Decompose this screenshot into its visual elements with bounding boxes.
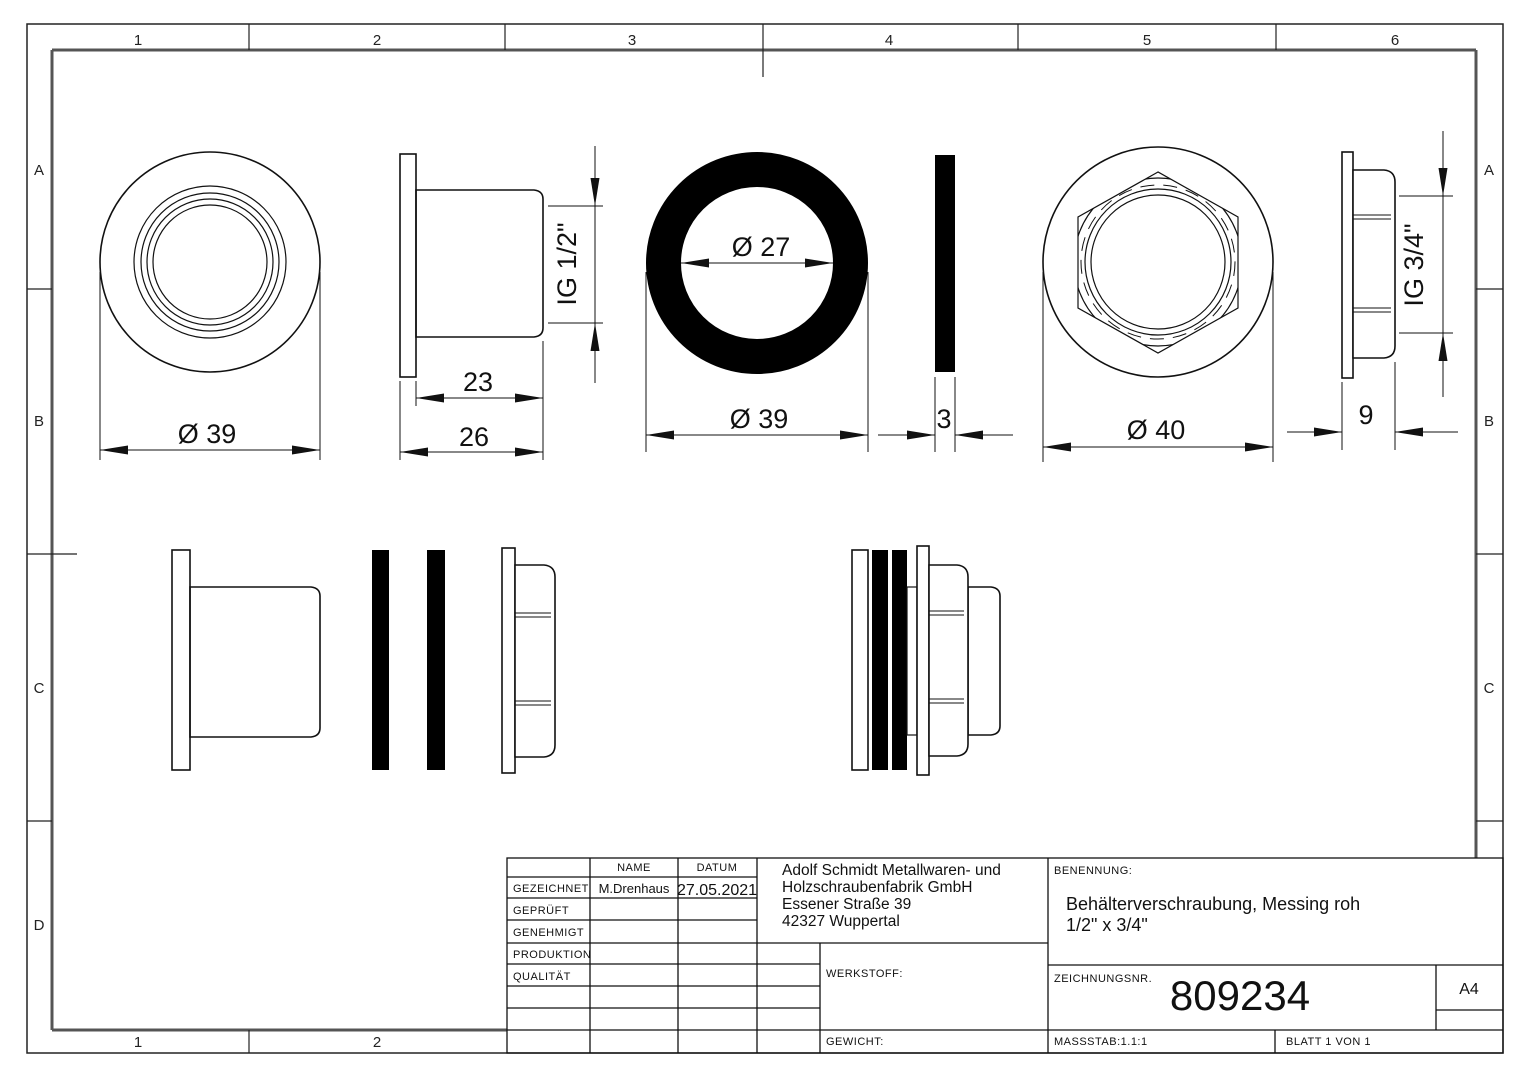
zone-top-1: 1 — [134, 32, 142, 49]
drawn-by-name: M.Drenhaus — [599, 881, 670, 896]
massstab-label: MASSSTAB:1.1:1 — [1054, 1036, 1148, 1048]
dim-label-nut-outer-diameter: Ø 40 — [1127, 415, 1186, 445]
drawing-canvas: 1 2 3 4 5 6 1 2 A B C D A B C Ø 39 — [0, 0, 1528, 1080]
zone-left-d: D — [34, 917, 45, 934]
assembly-thread-protrusion — [968, 587, 1000, 735]
dim-bushing-front-diameter: Ø 39 — [100, 272, 320, 460]
dim-nut-thread: IG 3/4" — [1399, 131, 1453, 397]
name-header: NAME — [617, 862, 651, 874]
zeichnungsnr-label: ZEICHNUNGSNR. — [1054, 973, 1152, 985]
dim-label-gasket-thickness: 3 — [936, 404, 951, 434]
view-bushing-side: 23 26 IG 1/2" — [400, 146, 603, 460]
dim-label-bushing-thread: IG 1/2" — [552, 222, 582, 305]
assembly-gasket-1 — [872, 550, 888, 770]
view-gasket-side: 3 — [878, 155, 1013, 452]
row-label-genehmigt: GENEHMIGT — [513, 927, 584, 939]
zone-bottom-2: 2 — [373, 1034, 381, 1051]
company-line-4: 42327 Wuppertal — [782, 913, 900, 930]
zone-right-c: C — [1484, 680, 1495, 697]
title-block: NAME DATUM GEZEICHNET M.Drenhaus 27.05.2… — [507, 858, 1503, 1053]
dim-label-gasket-inner-diameter: Ø 27 — [732, 232, 791, 262]
dim-label-nut-width: 9 — [1358, 400, 1373, 430]
view-assembly — [852, 546, 1000, 775]
gewicht-label: GEWICHT: — [826, 1036, 884, 1048]
company-line-2: Holzschraubenfabrik GmbH — [782, 879, 972, 896]
zone-left-a: A — [34, 162, 44, 179]
sheet-format: A4 — [1459, 981, 1479, 998]
row-label-produktion: PRODUKTION — [513, 949, 591, 961]
zone-top-3: 3 — [628, 32, 636, 49]
zone-left-c: C — [34, 680, 45, 697]
part-title-line-1: Behälterverschraubung, Messing roh — [1066, 894, 1360, 914]
dim-bushing-thread: IG 1/2" — [548, 146, 603, 383]
dim-gasket-inner-diameter: Ø 27 — [681, 232, 833, 268]
dim-gasket-thickness: 3 — [878, 377, 1013, 452]
assembly-thread-segment — [907, 587, 917, 735]
company-line-1: Adolf Schmidt Metallwaren- und — [782, 862, 1001, 879]
row-label-gezeichnet: GEZEICHNET — [513, 883, 589, 895]
drawing-number: 809234 — [1170, 972, 1310, 1019]
zone-left-b: B — [34, 413, 44, 430]
zone-top-5: 5 — [1143, 32, 1151, 49]
dim-label-bushing-front-diameter: Ø 39 — [178, 419, 237, 449]
company-line-3: Essener Straße 39 — [782, 896, 911, 913]
zone-top-6: 6 — [1391, 32, 1399, 49]
assembly-nut-flange — [917, 546, 929, 775]
view-nut-side-large — [502, 548, 555, 773]
dim-label-gasket-outer-diameter: Ø 39 — [730, 404, 789, 434]
zone-right-b: B — [1484, 413, 1494, 430]
zone-top-4: 4 — [885, 32, 893, 49]
view-bushing-front: Ø 39 — [100, 152, 320, 460]
view-bushing-side-large — [172, 550, 320, 770]
drawing-sheet: 1 2 3 4 5 6 1 2 A B C D A B C Ø 39 — [0, 0, 1528, 1080]
part-title-line-2: 1/2" x 3/4" — [1066, 915, 1148, 935]
date-header: DATUM — [697, 862, 738, 874]
assembly-gasket-2 — [892, 550, 907, 770]
zone-bottom-1: 1 — [134, 1034, 142, 1051]
view-nut-front: Ø 40 — [1043, 147, 1273, 462]
view-gasket-front: Ø 27 Ø 39 — [646, 170, 868, 453]
dim-label-bushing-length: 26 — [459, 422, 489, 452]
row-label-qualitaet: QUALITÄT — [513, 971, 571, 983]
zone-right-a: A — [1484, 162, 1494, 179]
assembly-bushing-flange — [852, 550, 868, 770]
row-label-geprueft: GEPRÜFT — [513, 905, 569, 917]
gasket-bar-2 — [427, 550, 445, 770]
blatt-label: BLATT 1 VON 1 — [1286, 1036, 1371, 1048]
assembly-nut-body — [929, 565, 968, 756]
gasket-bar-1 — [372, 550, 389, 770]
zone-top-2: 2 — [373, 32, 381, 49]
view-gaskets-side-pair — [372, 550, 445, 770]
drawn-date: 27.05.2021 — [677, 882, 757, 899]
dim-nut-width: 9 — [1287, 362, 1458, 450]
dim-label-thread-length: 23 — [463, 367, 493, 397]
dim-label-nut-thread: IG 3/4" — [1399, 223, 1429, 306]
werkstoff-label: WERKSTOFF: — [826, 968, 903, 980]
view-nut-side: IG 3/4" 9 — [1287, 131, 1458, 450]
benennung-label: BENENNUNG: — [1054, 865, 1132, 877]
